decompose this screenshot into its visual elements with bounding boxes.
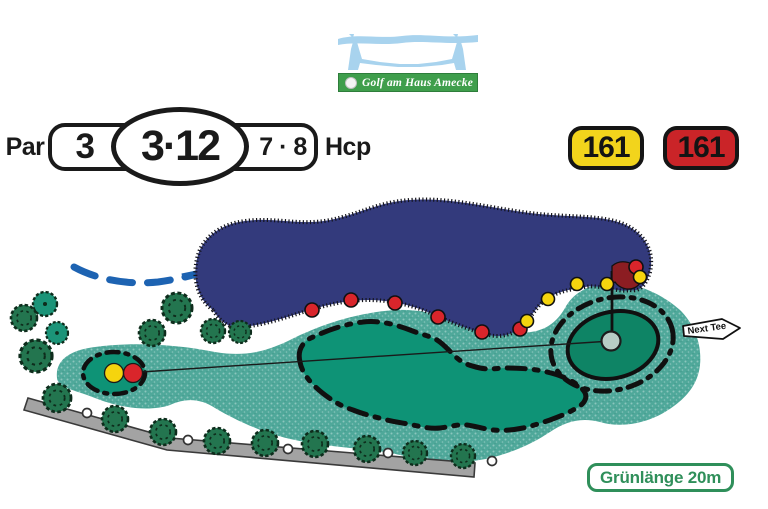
hazard-stake-red xyxy=(305,303,319,317)
boundary-stake xyxy=(488,457,497,466)
green-length-badge: Grünlänge 20m xyxy=(587,463,734,492)
hazard-stake-yellow xyxy=(521,315,534,328)
stream-dashed-line xyxy=(74,267,203,283)
tree-icon xyxy=(102,406,128,432)
tree-icon xyxy=(302,431,328,457)
club-logo-banner: Golf am Haus Amecke xyxy=(338,73,478,92)
hazard-stake-red xyxy=(431,310,445,324)
club-logo: Golf am Haus Amecke xyxy=(338,30,478,92)
hcp-value: 7 · 8 xyxy=(248,123,318,171)
par-value: 3 xyxy=(52,123,118,171)
par-label: Par xyxy=(4,123,46,171)
hazard-stake-yellow xyxy=(634,271,647,284)
tree-icon xyxy=(20,340,52,372)
distance-yellow-value: 161 xyxy=(582,131,629,165)
green-length-label: Grünlänge 20m xyxy=(600,468,721,488)
distance-badge-red: 161 xyxy=(663,126,739,170)
boundary-stake xyxy=(284,445,293,454)
distance-red-value: 161 xyxy=(677,131,724,165)
tree-icon xyxy=(403,441,427,465)
hazard-stake-red xyxy=(344,293,358,307)
tree-icon xyxy=(204,428,230,454)
tree-icon xyxy=(46,322,68,344)
hole-marker xyxy=(602,332,621,351)
hazard-stake-yellow xyxy=(601,278,614,291)
hole-number-oval: 3·12 xyxy=(111,107,249,186)
hcp-label: Hcp xyxy=(325,123,371,171)
golf-ball-icon xyxy=(345,77,357,89)
hazard-stake-yellow xyxy=(542,293,555,306)
next-tee-sign: Next Tee xyxy=(683,319,740,339)
boundary-stake xyxy=(384,449,393,458)
hazard-stake-yellow xyxy=(571,278,584,291)
tree-icon xyxy=(162,293,192,323)
distance-badge-yellow: 161 xyxy=(568,126,644,170)
tree-icon xyxy=(150,419,176,445)
tree-icon xyxy=(354,436,380,462)
boundary-stake xyxy=(83,409,92,418)
hazard-stake-red xyxy=(475,325,489,339)
boundary-stake xyxy=(184,436,193,445)
club-name: Golf am Haus Amecke xyxy=(362,77,473,89)
tree-icon xyxy=(229,321,251,343)
tee-marker-yellow xyxy=(105,364,124,383)
tree-icon xyxy=(11,305,37,331)
golf-hole-guide-page: Next Tee Golf am Haus Amecke Par 3 3·12 … xyxy=(0,0,768,509)
hole-number: 3·12 xyxy=(141,122,219,171)
club-building-icon xyxy=(338,30,478,72)
tee-marker-red xyxy=(124,364,143,383)
tree-icon xyxy=(139,320,165,346)
tree-icon xyxy=(252,430,278,456)
tree-icon xyxy=(201,319,225,343)
tree-icon xyxy=(43,384,71,412)
hazard-stake-red xyxy=(388,296,402,310)
tree-icon xyxy=(451,444,475,468)
